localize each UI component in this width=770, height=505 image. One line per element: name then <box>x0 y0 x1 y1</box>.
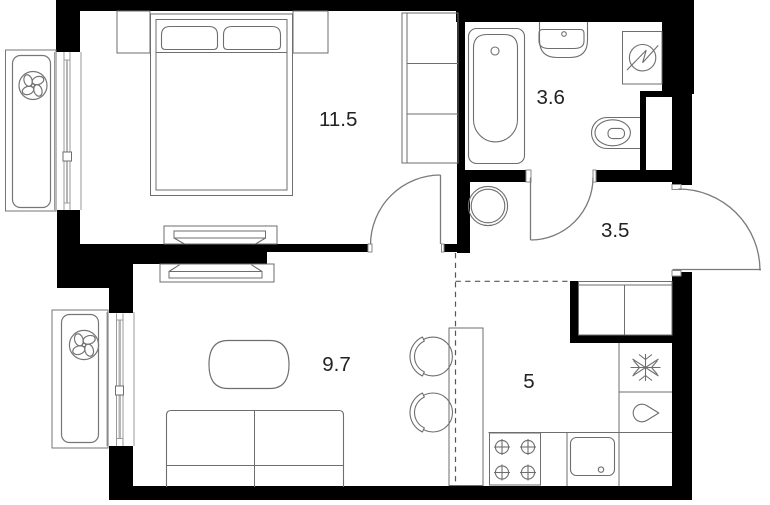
svg-text:3.5: 3.5 <box>601 219 630 242</box>
svg-text:3.6: 3.6 <box>536 86 565 109</box>
svg-text:11.5: 11.5 <box>319 108 357 131</box>
svg-text:9.7: 9.7 <box>322 353 351 376</box>
svg-text:5: 5 <box>523 370 534 393</box>
